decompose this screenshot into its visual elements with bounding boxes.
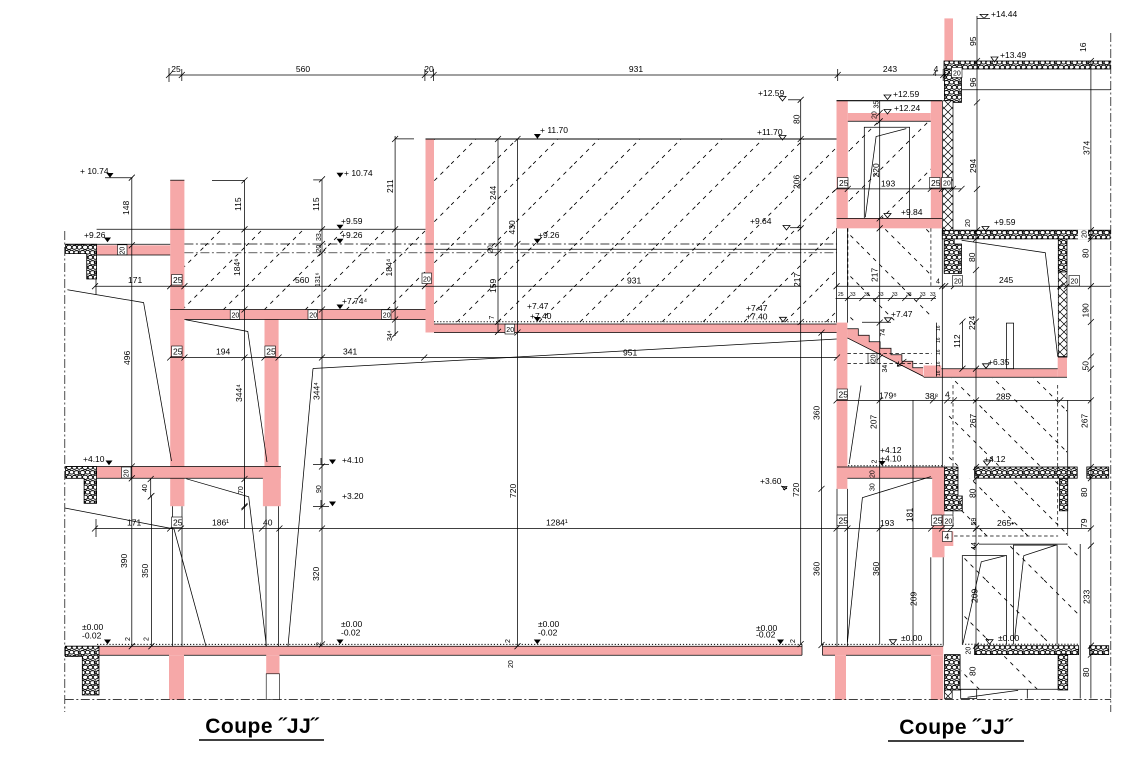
svg-text:+9.84: +9.84: [901, 207, 923, 217]
svg-text:30: 30: [870, 483, 877, 491]
svg-text:267: 267: [1080, 414, 1090, 428]
svg-text:233: 233: [1082, 590, 1092, 604]
svg-text:80: 80: [968, 488, 978, 498]
svg-text:148: 148: [121, 201, 131, 215]
svg-text:-0.02: -0.02: [341, 628, 361, 638]
svg-text:+9.59: +9.59: [341, 216, 363, 226]
svg-text:217: 217: [792, 273, 802, 287]
svg-text:320: 320: [311, 567, 321, 581]
svg-text:20: 20: [870, 470, 877, 478]
svg-text:25: 25: [171, 64, 181, 74]
svg-text:294: 294: [968, 159, 978, 173]
svg-text:+7.74⁴: +7.74⁴: [342, 296, 368, 306]
svg-text:25: 25: [839, 390, 849, 400]
svg-text:209: 209: [909, 592, 919, 606]
svg-text:+9.59: +9.59: [994, 217, 1016, 227]
svg-text:+7.47: +7.47: [891, 309, 913, 319]
svg-text:244: 244: [488, 186, 498, 200]
svg-text:931: 931: [627, 276, 641, 286]
svg-text:95: 95: [968, 36, 978, 46]
svg-text:245: 245: [999, 275, 1013, 285]
svg-text:34⁴: 34⁴: [387, 330, 394, 341]
svg-text:25: 25: [266, 347, 276, 357]
svg-text:186¹: 186¹: [212, 518, 229, 528]
svg-text:211: 211: [385, 179, 395, 193]
svg-text:181: 181: [905, 508, 915, 522]
svg-text:20: 20: [965, 219, 972, 227]
svg-text:131⁶: 131⁶: [315, 272, 322, 287]
svg-text:+4.12: +4.12: [984, 454, 1006, 464]
svg-text:390: 390: [119, 554, 129, 568]
svg-text:2: 2: [316, 642, 323, 646]
svg-text:374: 374: [1082, 141, 1092, 155]
svg-text:20: 20: [954, 279, 962, 286]
svg-text:40: 40: [263, 518, 273, 528]
svg-text:20: 20: [953, 71, 961, 78]
svg-text:25: 25: [173, 275, 183, 285]
svg-text:Coupe ˝JJ˝: Coupe ˝JJ˝: [899, 716, 1013, 739]
svg-text:96: 96: [968, 77, 978, 87]
svg-text:285: 285: [996, 392, 1010, 402]
svg-text:16: 16: [936, 361, 942, 367]
svg-text:193: 193: [880, 518, 894, 528]
svg-text:+4.10: +4.10: [342, 455, 364, 465]
svg-text:7: 7: [489, 316, 496, 320]
svg-text:20: 20: [383, 313, 391, 320]
svg-text:35: 35: [874, 101, 881, 109]
svg-text:80: 80: [967, 252, 977, 262]
svg-text:33: 33: [316, 233, 323, 241]
svg-text:190: 190: [1081, 303, 1091, 317]
svg-text:184⁴: 184⁴: [384, 258, 394, 276]
svg-text:112: 112: [952, 334, 962, 348]
svg-text:33: 33: [930, 292, 936, 298]
svg-text:4: 4: [945, 390, 950, 400]
svg-text:-0.02: -0.02: [756, 630, 776, 640]
svg-text:217: 217: [870, 268, 880, 282]
svg-text:20: 20: [232, 313, 240, 320]
svg-text:38⁸: 38⁸: [925, 391, 938, 401]
svg-text:59: 59: [971, 518, 978, 526]
svg-text:16: 16: [936, 337, 942, 343]
svg-text:16: 16: [1078, 42, 1088, 52]
svg-text:2: 2: [144, 637, 151, 641]
svg-text:-0.02: -0.02: [538, 628, 558, 638]
svg-text:931: 931: [629, 64, 643, 74]
svg-text:720: 720: [791, 483, 801, 497]
svg-text:+3.60: +3.60: [760, 476, 782, 486]
svg-text:Coupe ˝JJ˝: Coupe ˝JJ˝: [205, 715, 319, 738]
svg-text:344⁴: 344⁴: [312, 382, 322, 400]
svg-text:243: 243: [883, 64, 897, 74]
svg-text:360: 360: [812, 406, 822, 420]
svg-text:+ 11.70: + 11.70: [540, 125, 568, 135]
svg-text:34: 34: [882, 365, 889, 373]
svg-text:+9.26: +9.26: [84, 230, 106, 240]
svg-text:360: 360: [871, 562, 881, 576]
svg-text:25: 25: [931, 178, 941, 188]
svg-text:+6.35: +6.35: [988, 357, 1010, 367]
svg-text:20: 20: [124, 469, 131, 477]
svg-text:720: 720: [508, 484, 518, 498]
svg-text:115: 115: [233, 197, 243, 211]
svg-text:2: 2: [125, 637, 132, 641]
svg-text:360: 360: [812, 562, 822, 576]
svg-text:+7.47: +7.47: [527, 301, 549, 311]
svg-text:560: 560: [295, 275, 309, 285]
svg-text:209: 209: [970, 589, 980, 603]
svg-text:+9.26: +9.26: [341, 230, 363, 240]
svg-text:115: 115: [311, 197, 321, 211]
svg-text:+14.44: +14.44: [991, 9, 1018, 19]
svg-text:20: 20: [423, 277, 431, 284]
svg-text:20: 20: [966, 647, 973, 655]
svg-text:20: 20: [506, 327, 514, 334]
svg-text:4: 4: [936, 279, 940, 286]
svg-text:20: 20: [488, 245, 495, 253]
svg-text:25: 25: [839, 516, 849, 526]
svg-text:+ 10.74: + 10.74: [344, 168, 373, 178]
svg-text:341: 341: [343, 347, 357, 357]
svg-text:80: 80: [1081, 248, 1091, 258]
svg-text:25: 25: [933, 516, 943, 526]
svg-text:±0.00: ±0.00: [998, 633, 1019, 643]
svg-text:224: 224: [967, 316, 977, 330]
svg-text:+13.49: +13.49: [1000, 50, 1027, 60]
svg-text:+12.59: +12.59: [893, 89, 920, 99]
svg-text:206: 206: [792, 175, 802, 189]
svg-text:171: 171: [128, 275, 142, 285]
svg-text:25: 25: [173, 347, 183, 357]
svg-text:33: 33: [920, 292, 926, 298]
svg-text:207: 207: [869, 415, 879, 429]
svg-text:80: 80: [968, 666, 978, 676]
svg-text:16: 16: [936, 349, 942, 355]
svg-text:193: 193: [881, 179, 895, 189]
svg-text:+7.40: +7.40: [746, 312, 768, 322]
svg-text:33: 33: [892, 292, 898, 298]
svg-text:20: 20: [120, 247, 127, 255]
svg-text:74: 74: [880, 329, 887, 337]
svg-text:25: 25: [838, 292, 844, 298]
svg-text:33: 33: [864, 292, 870, 298]
svg-text:44: 44: [971, 542, 978, 550]
svg-text:171: 171: [127, 518, 141, 528]
svg-text:33: 33: [878, 292, 884, 298]
svg-text:20: 20: [1082, 230, 1089, 238]
svg-text:+ 10.74: + 10.74: [80, 166, 109, 176]
svg-text:+3.20: +3.20: [342, 491, 364, 501]
svg-text:4: 4: [933, 71, 937, 78]
svg-text:350: 350: [140, 564, 150, 578]
svg-text:40: 40: [142, 484, 149, 492]
svg-text:20: 20: [945, 519, 953, 526]
svg-text:+4.10: +4.10: [83, 454, 105, 464]
svg-text:16: 16: [936, 370, 942, 376]
svg-text:25: 25: [839, 178, 849, 188]
svg-text:+9.26: +9.26: [538, 230, 560, 240]
svg-text:90: 90: [316, 485, 323, 493]
svg-text:20: 20: [1071, 279, 1079, 286]
svg-text:20: 20: [943, 181, 951, 188]
svg-text:220: 220: [871, 163, 881, 177]
svg-text:265•: 265•: [997, 518, 1014, 528]
svg-text:-0.02: -0.02: [82, 631, 102, 641]
svg-text:20: 20: [872, 111, 879, 119]
svg-text:±0.00: ±0.00: [901, 633, 922, 643]
svg-text:20: 20: [508, 660, 515, 668]
svg-text:33: 33: [850, 292, 856, 298]
svg-text:25: 25: [173, 518, 183, 528]
svg-text:194: 194: [216, 347, 230, 357]
svg-text:80: 80: [792, 114, 802, 124]
svg-text:16: 16: [936, 325, 942, 331]
svg-text:80: 80: [1079, 487, 1089, 497]
svg-text:20: 20: [424, 64, 434, 74]
svg-text:4: 4: [945, 532, 950, 542]
svg-text:1284¹: 1284¹: [546, 518, 568, 528]
svg-text:20: 20: [871, 354, 878, 362]
svg-text:184⁶: 184⁶: [232, 258, 242, 276]
svg-text:20: 20: [316, 245, 323, 253]
svg-text:2: 2: [790, 639, 797, 643]
svg-text:267: 267: [968, 414, 978, 428]
svg-text:2: 2: [872, 460, 879, 464]
svg-text:33: 33: [906, 292, 912, 298]
svg-text:560: 560: [296, 64, 310, 74]
svg-text:+12.24: +12.24: [894, 103, 921, 113]
svg-text:179⁸: 179⁸: [879, 391, 897, 401]
svg-text:+9.64: +9.64: [750, 216, 772, 226]
svg-text:80: 80: [1081, 667, 1091, 677]
svg-text:2: 2: [505, 639, 512, 643]
svg-text:20: 20: [309, 313, 317, 320]
svg-text:951: 951: [623, 348, 637, 358]
svg-text:430: 430: [507, 220, 517, 234]
svg-text:+7.40: +7.40: [530, 311, 552, 321]
svg-text:79: 79: [1079, 518, 1089, 528]
svg-text:159: 159: [488, 279, 498, 293]
svg-text:496: 496: [122, 351, 132, 365]
svg-text:344⁴: 344⁴: [234, 384, 244, 402]
svg-text:50: 50: [1081, 361, 1091, 371]
svg-text:70: 70: [238, 486, 245, 494]
